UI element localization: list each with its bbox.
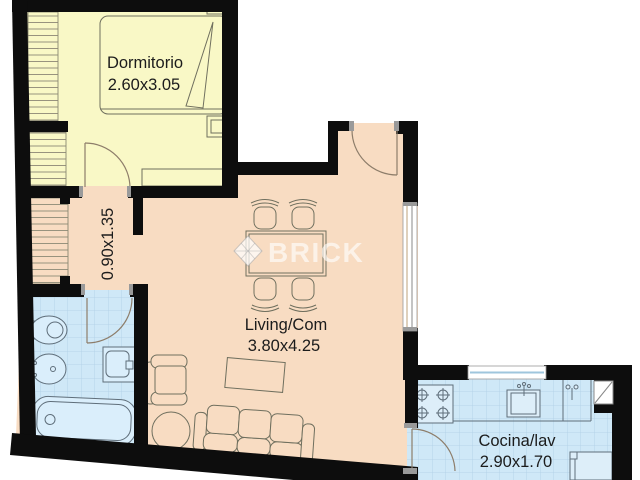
toilet-bowl <box>47 322 63 338</box>
bathtub-drain <box>45 414 55 424</box>
living-window <box>403 202 417 331</box>
vanity-faucet <box>126 361 133 369</box>
label-dormitorio: Dormitorio <box>107 54 183 72</box>
kitchen-window <box>468 366 546 379</box>
wall-bedroom-hall-left <box>26 186 82 198</box>
wall-kitchen-right <box>612 377 632 480</box>
side-table <box>152 412 190 450</box>
dims-living: 3.80x4.25 <box>248 337 320 355</box>
stove <box>412 385 453 423</box>
wall-bedroom-right <box>222 0 238 198</box>
floorplan-canvas: Dormitorio 2.60x3.05 0.90x1.35 Living/Co… <box>0 0 640 480</box>
bedroom-wardrobe-top <box>28 12 58 121</box>
wall-kitchen-top-left <box>403 365 469 380</box>
wall-hall-bath-left <box>20 284 84 297</box>
label-living: Living/Com <box>245 316 328 334</box>
bidet <box>32 354 66 384</box>
coffee-table <box>225 358 285 393</box>
wall-closet-stub-bottom <box>60 276 70 285</box>
wall-bedroom-hall-right <box>128 186 238 198</box>
wall-closet-divider <box>24 121 68 132</box>
bedroom-wardrobe-bottom <box>28 132 66 186</box>
wall-kitchen-left <box>405 380 418 428</box>
armchair <box>144 355 187 405</box>
windows <box>403 202 546 379</box>
wall-step <box>238 162 334 175</box>
wall-bathroom-right <box>134 292 148 452</box>
dining-chair <box>292 207 314 229</box>
wall-top <box>12 0 238 12</box>
bedroom-bench <box>142 169 225 186</box>
shaft-duct <box>594 381 613 404</box>
dining-chair <box>254 278 276 300</box>
label-cocina: Cocina/lav <box>478 432 556 450</box>
hall-closet <box>30 197 68 284</box>
dims-cocina: 2.90x1.70 <box>480 453 552 471</box>
floorplan-svg: Dormitorio 2.60x3.05 0.90x1.35 Living/Co… <box>0 0 640 480</box>
bidet-drain <box>51 367 56 372</box>
laundry-tub <box>570 452 612 480</box>
dims-pasillo: 0.90x1.35 <box>99 208 117 280</box>
watermark-brand: BRICK <box>268 237 364 268</box>
wall-closet-stub-top <box>60 195 70 204</box>
wall-hall-right <box>133 196 143 235</box>
dims-dormitorio: 2.60x3.05 <box>108 76 180 94</box>
dining-chair <box>292 278 314 300</box>
dining-chair <box>254 207 276 229</box>
